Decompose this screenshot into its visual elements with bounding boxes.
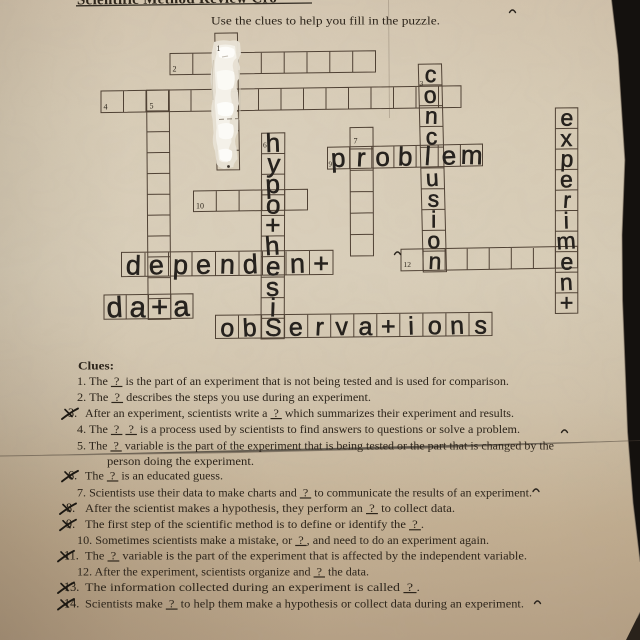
svg-text:a: a [129, 292, 148, 325]
svg-text:e: e [148, 250, 165, 281]
svg-text:+: + [560, 290, 573, 316]
svg-text:person doing the experiment.: person doing the experiment. [107, 454, 254, 468]
svg-text:1. The ? is the part of an: 1. The ? is the part of an experiment th… [77, 374, 509, 388]
svg-text:Use the clues to help you fill: Use the clues to help you fill in the pu… [211, 16, 440, 28]
svg-text:Clues:: Clues: [78, 359, 114, 373]
svg-text:6: 6 [263, 141, 267, 150]
svg-text:n: n [428, 248, 442, 275]
svg-text:The ? variable is the part o: The ? variable is the part of the experi… [85, 548, 527, 562]
svg-text:s: s [474, 311, 487, 339]
svg-text:d: d [242, 249, 259, 280]
svg-text:n: n [219, 249, 235, 280]
svg-text:Scientists make ? to help th: Scientists make ? to help them make a hy… [85, 597, 524, 611]
svg-text:p: p [172, 250, 189, 281]
svg-text:e: e [195, 249, 211, 280]
svg-text:The information collected duri: The information collected during an expe… [85, 580, 420, 594]
svg-text:d: d [106, 292, 124, 325]
svg-text:b: b [398, 141, 414, 171]
svg-text:7: 7 [354, 137, 358, 146]
svg-text:4: 4 [104, 103, 108, 112]
svg-text:1: 1 [217, 44, 221, 53]
svg-text:4. The ? ? is a process us: 4. The ? ? is a process used by scientis… [77, 422, 520, 436]
svg-text:e: e [441, 140, 457, 171]
svg-text:n: n [449, 312, 464, 341]
svg-text:5: 5 [150, 102, 154, 111]
svg-text:+: + [381, 313, 396, 341]
svg-text:The first step of the scientif: The first step of the scientific method … [85, 517, 424, 531]
svg-text:d: d [125, 250, 141, 281]
svg-text:+: + [151, 292, 168, 324]
svg-text:r: r [315, 313, 325, 341]
svg-text:10. Sometimes scientists make: 10. Sometimes scientists make a mistake,… [77, 533, 489, 547]
svg-text:5. The ? variable is the par: 5. The ? variable is the part of the exp… [77, 438, 554, 452]
svg-text:3: 3 [420, 80, 424, 88]
svg-text:i: i [408, 312, 415, 340]
svg-text:m: m [460, 140, 483, 171]
svg-text:o: o [375, 142, 391, 172]
svg-text:12: 12 [404, 260, 412, 269]
svg-text:e: e [288, 313, 303, 341]
svg-text:S: S [265, 314, 283, 343]
svg-text:p: p [330, 143, 346, 174]
svg-text:o: o [220, 314, 235, 343]
svg-text:The ? is an educated guess.: The ? is an educated guess. [85, 468, 223, 482]
svg-text:After the scientist makes a hy: After the scientist makes a hypothesis, … [85, 501, 455, 515]
svg-text:a: a [172, 291, 191, 324]
svg-text:12. After the experiment, scie: 12. After the experiment, scientists org… [77, 564, 369, 578]
svg-text:7. Scientists use their data t: 7. Scientists use their data to make cha… [77, 485, 532, 499]
svg-text:v: v [335, 313, 349, 342]
svg-text:o: o [427, 312, 442, 341]
svg-text:+: + [313, 249, 329, 279]
svg-text:2: 2 [173, 65, 177, 74]
svg-text:10: 10 [196, 202, 204, 211]
svg-text:a: a [358, 313, 373, 341]
svg-text:9: 9 [329, 161, 333, 169]
svg-text:2. The ? describes the step: 2. The ? describes the steps you use dur… [77, 390, 371, 404]
svg-text:b: b [242, 314, 257, 343]
svg-text:n: n [289, 249, 305, 280]
svg-text:After an experiment, scientist: After an experiment, scientists write a … [85, 406, 514, 420]
